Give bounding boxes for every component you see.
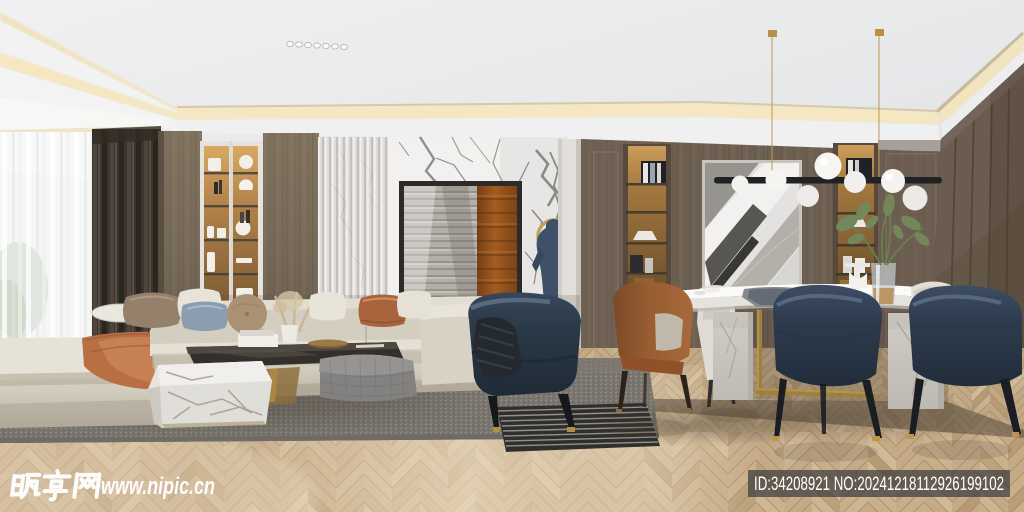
svg-text:ID:34208921 NO:202412181129261: ID:34208921 NO:20241218112926199102	[754, 474, 1004, 495]
svg-text:www.nipic.cn: www.nipic.cn	[101, 473, 215, 500]
